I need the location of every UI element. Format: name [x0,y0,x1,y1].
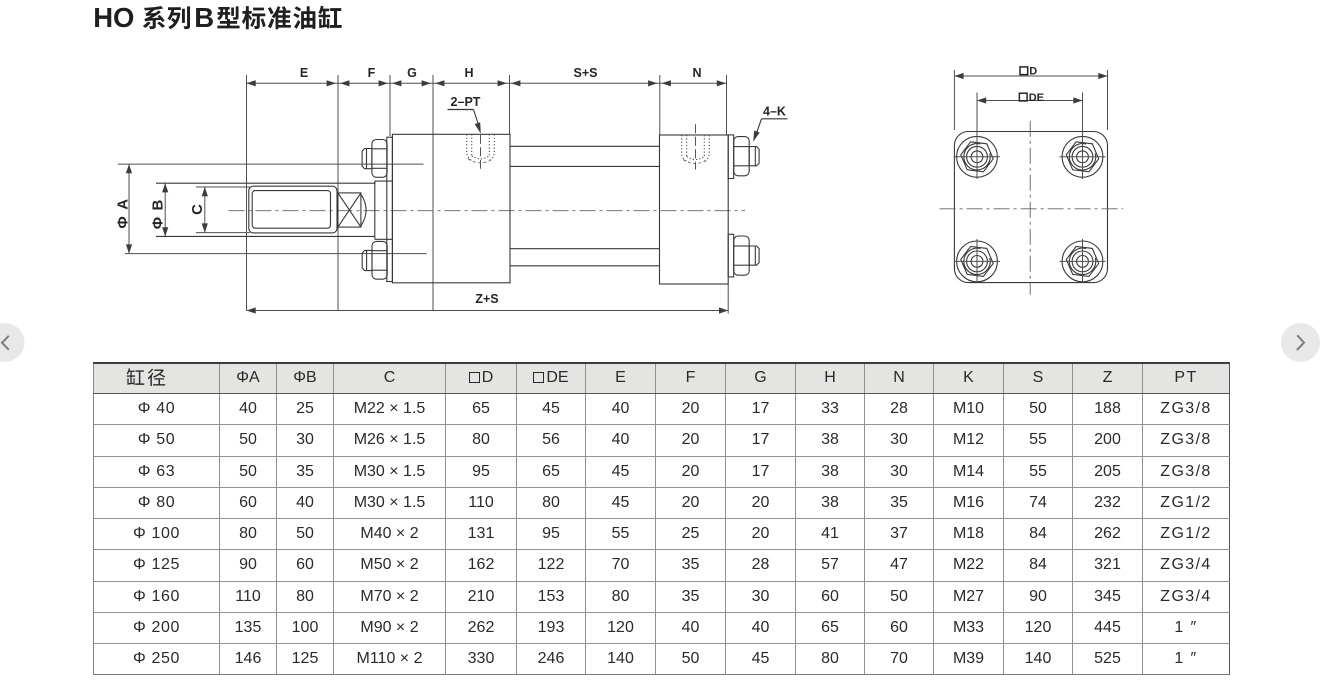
svg-text:D: D [1029,66,1037,78]
svg-text:H: H [464,66,473,80]
svg-text:E: E [300,66,308,80]
svg-text:Z+S: Z+S [475,292,498,306]
svg-text:N: N [692,66,701,80]
svg-text:C: C [189,204,206,215]
svg-text:S+S: S+S [574,66,598,80]
svg-text:HO: HO [93,2,134,33]
svg-text:4–K: 4–K [763,105,786,119]
svg-text:B: B [194,2,214,33]
svg-text:ΦA: ΦA [115,192,132,228]
svg-text:2–PT: 2–PT [451,95,481,109]
svg-text:DE: DE [1029,92,1044,104]
svg-text:ΦB: ΦB [150,193,167,229]
svg-text:G: G [407,66,417,80]
svg-text:F: F [368,66,376,80]
